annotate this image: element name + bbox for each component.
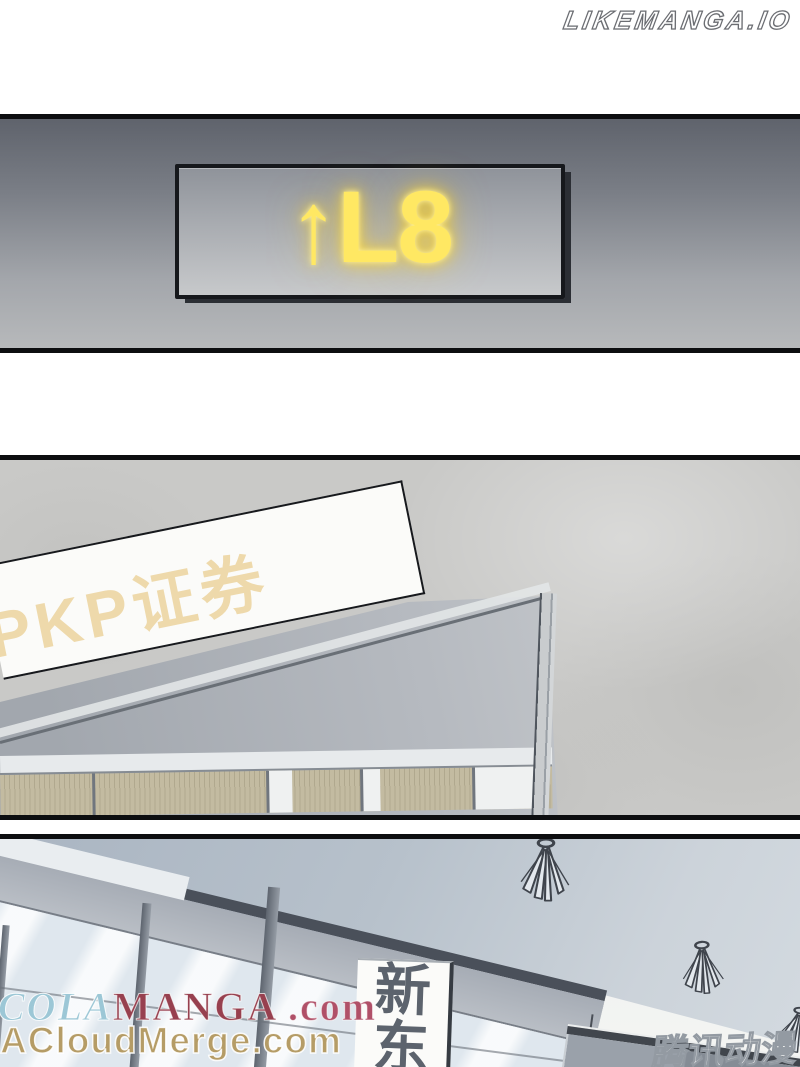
elevator-floor-sign: ↑L8 xyxy=(175,164,565,299)
blind-gap xyxy=(268,770,293,812)
manga-page: LIKEMANGA.IO ↑L8 PKP证券 xyxy=(0,0,800,1067)
acloud-watermark: ACloudMerge.com xyxy=(0,1020,342,1062)
publisher-logo-watermark: 腾讯动漫 xyxy=(650,1020,800,1067)
panel-storefront: PKP证券 xyxy=(0,455,800,820)
banner-char-2: 东 xyxy=(372,1018,430,1067)
panel-elevator: ↑L8 xyxy=(0,114,800,353)
window-mullion xyxy=(266,771,270,813)
window-mullion xyxy=(360,769,364,811)
window-blinds xyxy=(0,764,553,817)
window-mullion xyxy=(472,768,476,810)
pendant-light-icon xyxy=(515,837,577,923)
site-watermark: LIKEMANGA.IO xyxy=(561,5,795,36)
panel-interior: 新 东 xyxy=(0,834,800,1067)
window-mullion xyxy=(92,774,96,816)
blind-gap xyxy=(362,769,381,811)
elevator-floor-text: ↑L8 xyxy=(288,169,452,286)
banner-char-1: 新 xyxy=(374,961,432,1020)
pendant-light-icon xyxy=(676,938,733,1013)
